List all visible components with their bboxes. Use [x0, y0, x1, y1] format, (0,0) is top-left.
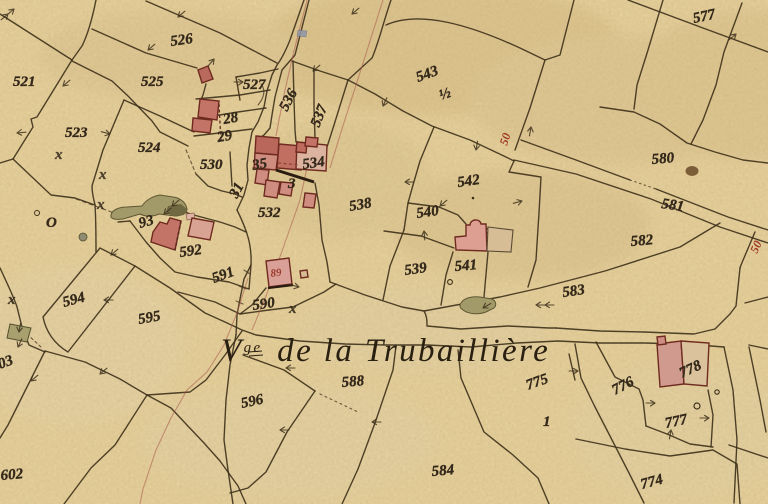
svg-text:521: 521 [13, 74, 36, 90]
svg-text:Vge de la Trubaillière: Vge de la Trubaillière [221, 333, 550, 369]
svg-text:3: 3 [287, 176, 296, 192]
svg-text:582: 582 [630, 232, 654, 250]
svg-text:89: 89 [270, 266, 283, 279]
svg-text:602: 602 [0, 466, 24, 484]
svg-text:581: 581 [660, 196, 685, 215]
svg-text:540: 540 [415, 203, 440, 222]
svg-text:584: 584 [431, 462, 455, 480]
svg-text:539: 539 [403, 260, 428, 279]
svg-text:O: O [46, 215, 57, 231]
svg-text:x: x [96, 197, 105, 213]
svg-text:526: 526 [169, 31, 194, 50]
svg-text:35: 35 [250, 155, 269, 174]
svg-text:x: x [54, 147, 63, 163]
svg-text:x: x [288, 301, 297, 317]
svg-text:541: 541 [454, 257, 478, 275]
svg-text:x: x [98, 167, 107, 183]
svg-text:28: 28 [221, 109, 240, 128]
svg-text:590: 590 [251, 295, 276, 314]
svg-text:542: 542 [456, 172, 481, 191]
svg-text:525: 525 [141, 74, 164, 90]
svg-text:583: 583 [561, 282, 586, 301]
svg-text:524: 524 [138, 140, 161, 156]
svg-text:523: 523 [65, 125, 88, 141]
svg-text:29: 29 [215, 127, 234, 146]
svg-text:580: 580 [651, 150, 675, 168]
svg-text:x: x [7, 292, 16, 308]
svg-text:592: 592 [178, 242, 203, 261]
svg-text:527: 527 [243, 77, 266, 93]
svg-text:532: 532 [258, 205, 281, 221]
svg-text:534: 534 [301, 154, 326, 173]
svg-text:530: 530 [200, 157, 223, 173]
svg-text:588: 588 [341, 373, 365, 391]
svg-text:1: 1 [543, 414, 551, 430]
